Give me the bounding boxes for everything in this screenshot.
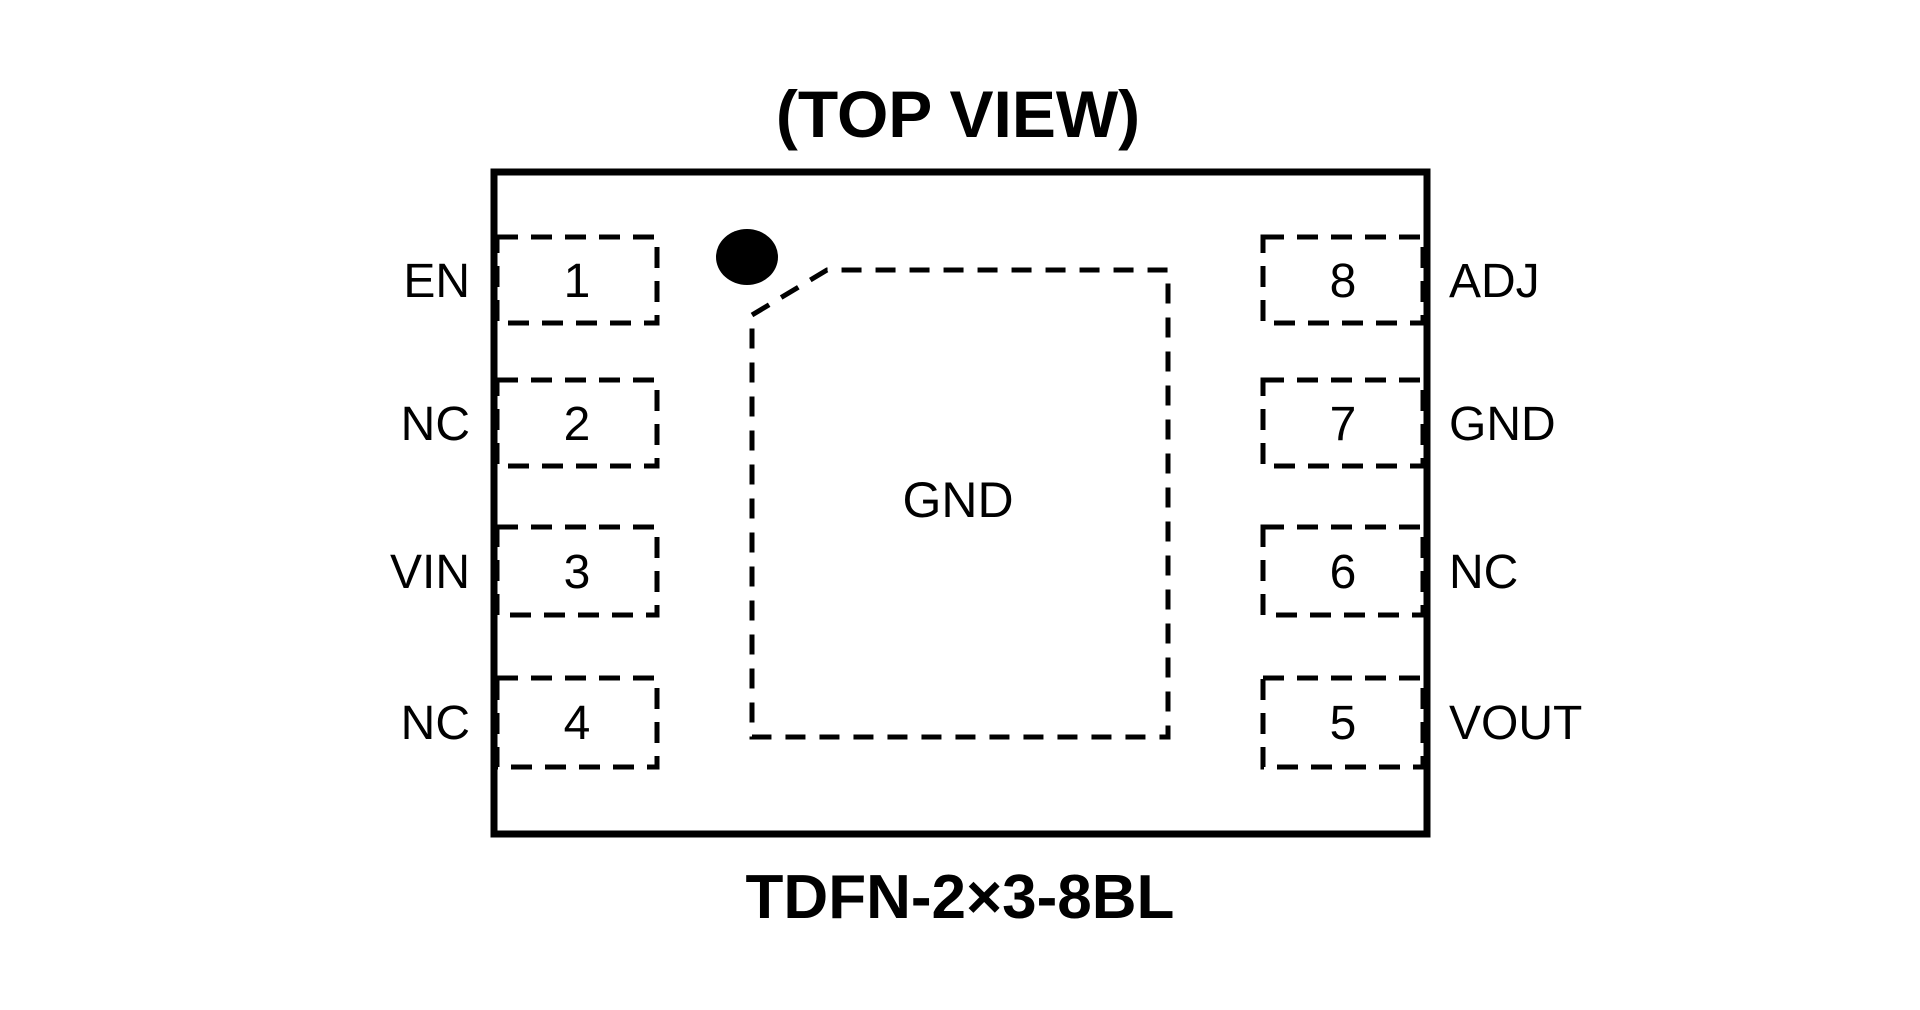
pinout-diagram-canvas: (TOP VIEW) GND 1 2 3 4 bbox=[0, 0, 1920, 1010]
pin-7-label: GND bbox=[1449, 398, 1556, 451]
pin-8-number: 8 bbox=[1330, 255, 1357, 308]
right-pin-labels: ADJ GND NC VOUT bbox=[1449, 255, 1582, 750]
pin-6-number: 6 bbox=[1330, 546, 1357, 599]
pin-3-number: 3 bbox=[564, 546, 591, 599]
pin-7-number: 7 bbox=[1330, 398, 1357, 451]
package-caption: TDFN-2×3-8BL bbox=[746, 863, 1175, 932]
pinout-diagram: (TOP VIEW) GND 1 2 3 4 bbox=[0, 0, 1920, 1010]
pin-6-label: NC bbox=[1449, 546, 1518, 599]
pin-2-label: NC bbox=[401, 398, 470, 451]
pin-4-number: 4 bbox=[564, 697, 591, 750]
left-pin-labels: EN NC VIN NC bbox=[390, 255, 470, 750]
pin-3-label: VIN bbox=[390, 546, 470, 599]
diagram-title: (TOP VIEW) bbox=[776, 77, 1140, 151]
pin-5-label: VOUT bbox=[1449, 697, 1582, 750]
pin-4-label: NC bbox=[401, 697, 470, 750]
pin-2-number: 2 bbox=[564, 398, 591, 451]
right-pin-boxes bbox=[1263, 237, 1423, 767]
pin-1-number: 1 bbox=[564, 255, 591, 308]
pin-1-label: EN bbox=[403, 255, 470, 308]
pin-8-label: ADJ bbox=[1449, 255, 1540, 308]
exposed-pad-label: GND bbox=[902, 472, 1013, 528]
pin-5-number: 5 bbox=[1330, 697, 1357, 750]
left-pin-boxes bbox=[497, 237, 657, 767]
pin1-indicator-dot bbox=[716, 229, 778, 285]
